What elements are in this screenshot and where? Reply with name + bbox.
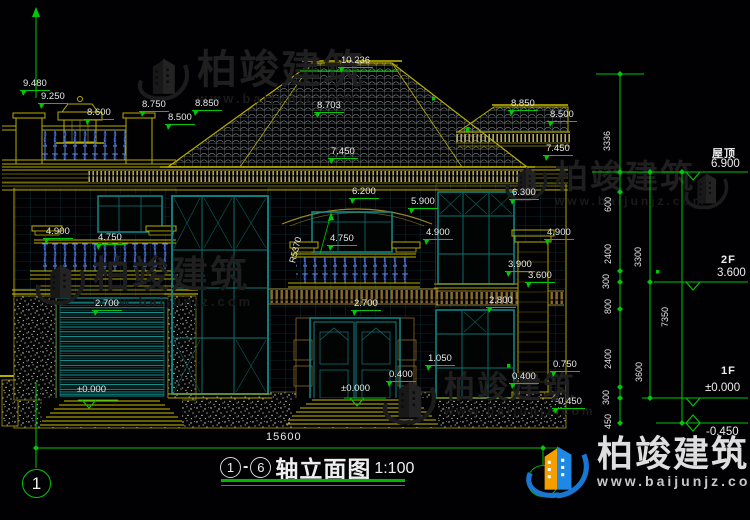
level-triangles	[82, 172, 700, 431]
brand-logo: 柏竣建筑 www.baijunjz.com	[524, 436, 750, 502]
title-scale: 1:100	[374, 460, 414, 478]
watermark-brand-name: 柏竣建筑	[597, 436, 750, 472]
watermark-brand-url: www.baijunjz.com	[597, 473, 750, 489]
title-underline-thin	[221, 485, 405, 486]
axis-circle-to: 6	[250, 457, 271, 478]
cad-elevation-drawing: 9.4809.2508.6008.7508.5008.85010.2368.70…	[0, 0, 750, 520]
title-underline-thick	[221, 479, 405, 482]
brand-logo-icon	[524, 436, 590, 502]
axis-range-dash: -	[243, 458, 248, 476]
axis-bubble-1: 1	[22, 469, 51, 498]
dimension-ticks	[32, 7, 685, 451]
axis-circle-from: 1	[220, 457, 241, 478]
